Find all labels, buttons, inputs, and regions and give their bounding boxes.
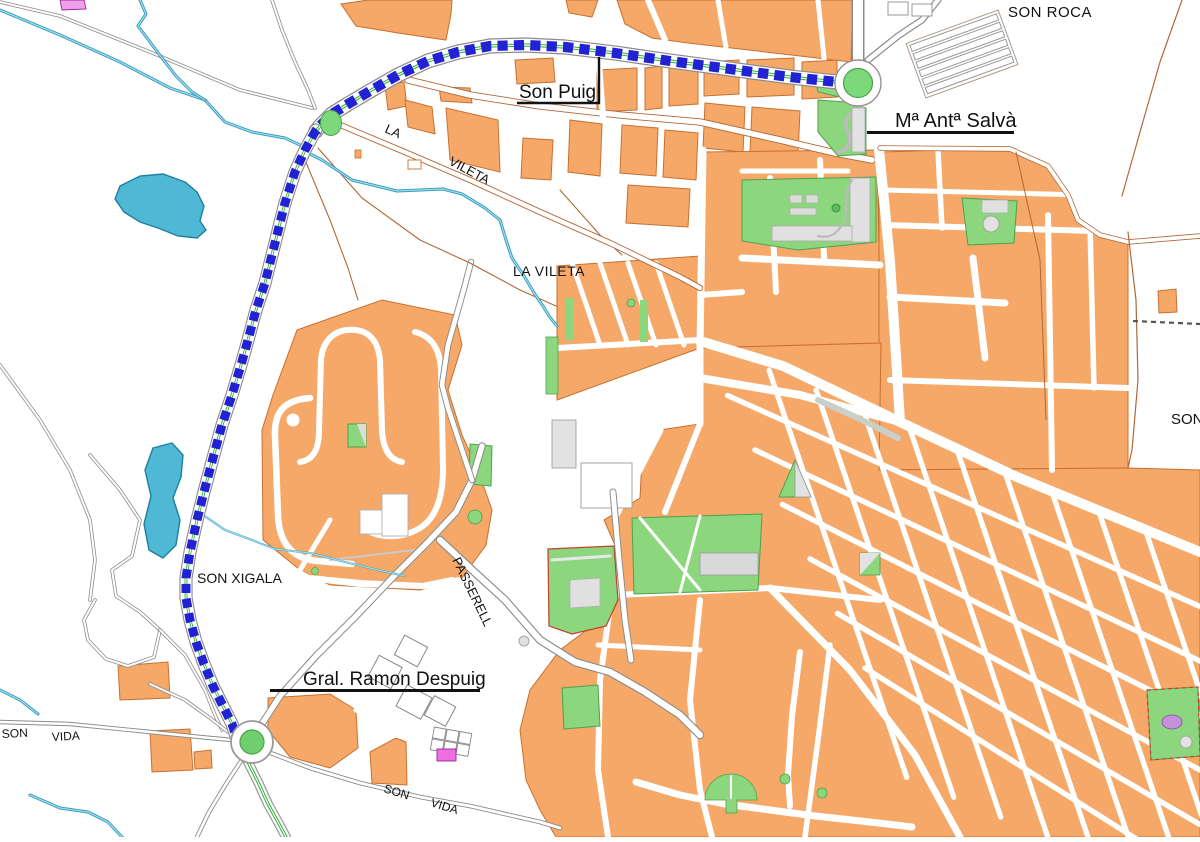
svg-text:VIDA: VIDA (51, 729, 80, 744)
svg-text:SON ROCA: SON ROCA (1008, 4, 1092, 21)
svg-text:SON: SON (1, 726, 28, 741)
svg-text:SON: SON (1171, 411, 1200, 428)
svg-text:Son Puig: Son Puig (519, 82, 596, 103)
svg-text:SON XIGALA: SON XIGALA (197, 570, 282, 586)
svg-text:Gral. Ramon Despuig: Gral. Ramon Despuig (303, 669, 486, 690)
svg-text:LA VILETA: LA VILETA (513, 263, 585, 279)
svg-text:Mª Antª Salvà: Mª Antª Salvà (895, 110, 1017, 132)
